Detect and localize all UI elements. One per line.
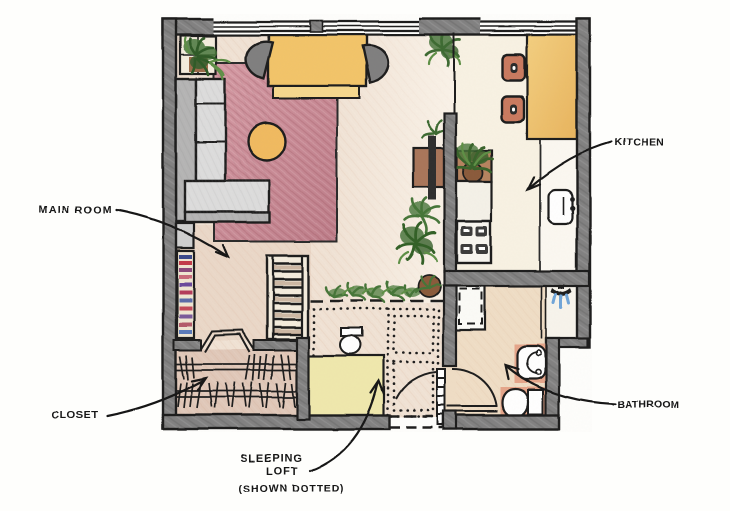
svg-text:SLEEPING: SLEEPING [240,453,303,465]
svg-text:BATHROOM: BATHROOM [617,399,680,411]
svg-text:MAIN ROOM: MAIN ROOM [39,204,112,216]
svg-text:LOFT: LOFT [266,466,298,478]
svg-text:CLOSET: CLOSET [52,409,98,421]
svg-text:KITCHEN: KITCHEN [614,137,664,149]
svg-text:(SHOWN DOTTED): (SHOWN DOTTED) [238,483,345,495]
